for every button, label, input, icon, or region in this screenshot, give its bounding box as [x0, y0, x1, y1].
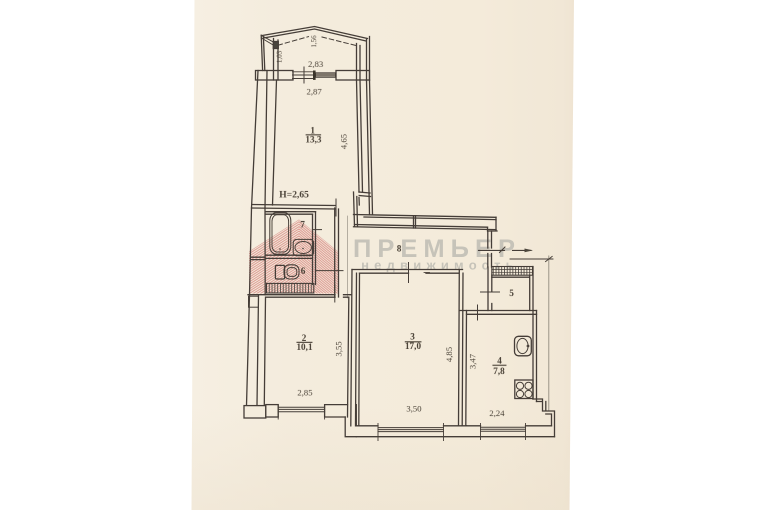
- svg-text:4,65: 4,65: [339, 134, 349, 149]
- svg-text:1,56: 1,56: [310, 35, 318, 48]
- svg-text:H=2,65: H=2,65: [279, 189, 309, 200]
- svg-text:13,3: 13,3: [305, 134, 321, 144]
- svg-text:3,50: 3,50: [406, 404, 422, 414]
- svg-text:2,87: 2,87: [307, 86, 323, 96]
- svg-text:4: 4: [497, 356, 502, 366]
- svg-text:4,85: 4,85: [444, 347, 454, 362]
- svg-text:5: 5: [509, 288, 514, 298]
- svg-text:2,24: 2,24: [489, 408, 505, 418]
- svg-text:17,0: 17,0: [405, 341, 421, 351]
- svg-text:3,47: 3,47: [467, 353, 477, 369]
- svg-text:2,85: 2,85: [297, 387, 312, 397]
- svg-text:7,8: 7,8: [493, 366, 505, 376]
- svg-text:2,83: 2,83: [308, 59, 323, 69]
- svg-text:6: 6: [301, 266, 306, 276]
- svg-text:10,1: 10,1: [296, 342, 312, 352]
- svg-text:7: 7: [300, 219, 305, 229]
- svg-text:1,03: 1,03: [276, 50, 284, 63]
- svg-text:3,55: 3,55: [333, 341, 343, 356]
- svg-text:8: 8: [397, 243, 402, 253]
